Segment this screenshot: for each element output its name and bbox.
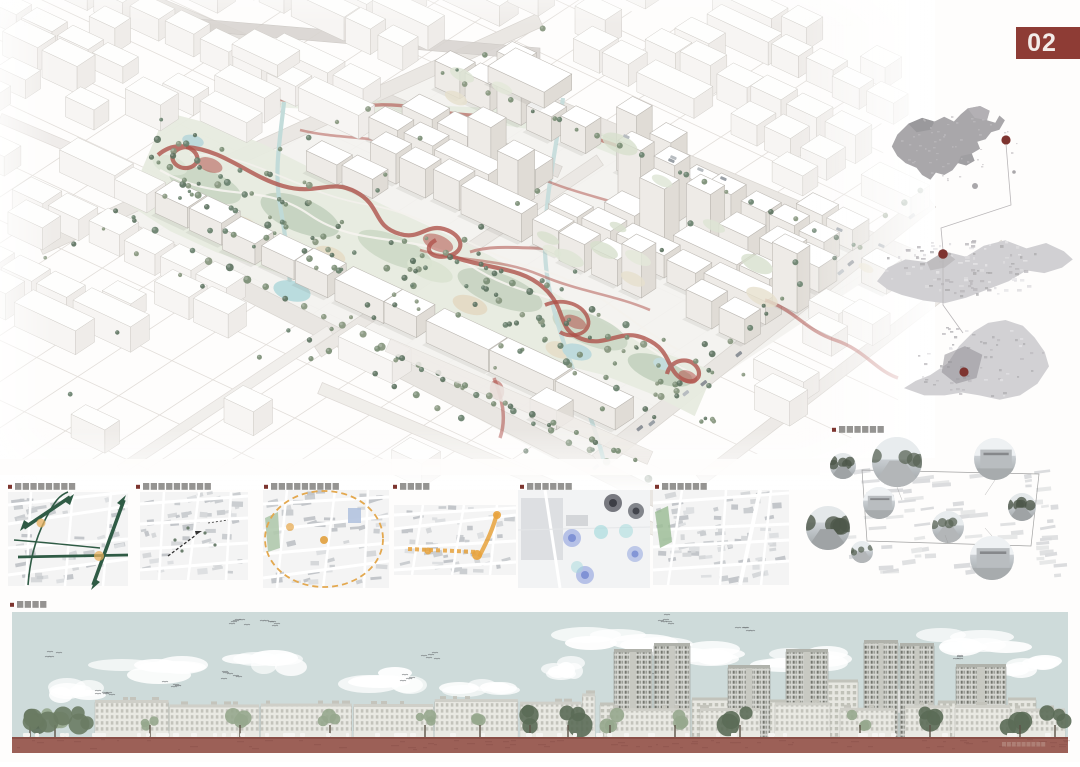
svg-text:02: 02 (1027, 29, 1057, 57)
